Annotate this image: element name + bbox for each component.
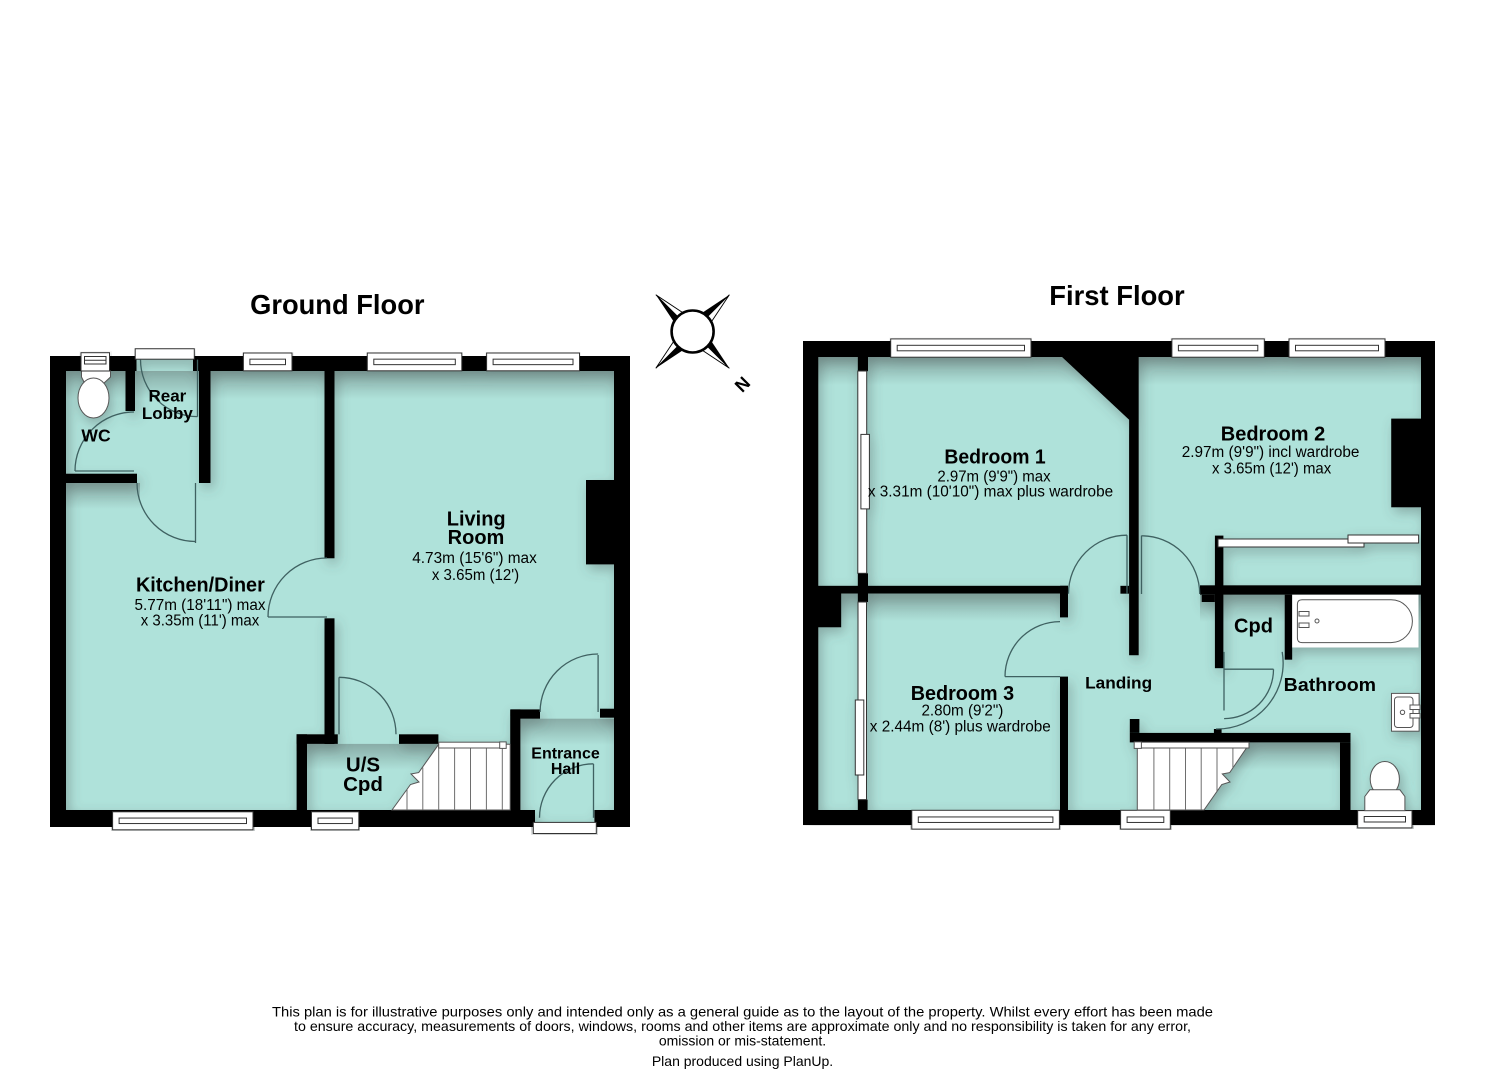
svg-text:x 2.44m (8') plus wardrobe: x 2.44m (8') plus wardrobe	[870, 719, 1051, 736]
svg-text:Rear: Rear	[148, 387, 186, 406]
svg-text:omission or mis-statement.: omission or mis-statement.	[659, 1033, 826, 1049]
svg-text:Plan produced using PlanUp.: Plan produced using PlanUp.	[652, 1053, 833, 1069]
svg-text:WC: WC	[81, 426, 111, 446]
svg-text:Lobby: Lobby	[142, 404, 194, 423]
svg-text:Bathroom: Bathroom	[1284, 674, 1376, 695]
svg-text:Cpd: Cpd	[343, 773, 383, 796]
svg-text:x 3.65m (12') max: x 3.65m (12') max	[1212, 461, 1331, 478]
svg-text:2.97m (9'9") incl wardrobe: 2.97m (9'9") incl wardrobe	[1182, 444, 1360, 461]
svg-text:Hall: Hall	[551, 761, 580, 778]
svg-text:Bedroom 2: Bedroom 2	[1221, 424, 1326, 446]
svg-text:Landing: Landing	[1085, 674, 1152, 692]
svg-text:x 3.65m (12'): x 3.65m (12')	[432, 567, 519, 584]
svg-text:Bedroom 1: Bedroom 1	[944, 446, 1045, 468]
svg-text:Kitchen/Diner: Kitchen/Diner	[136, 574, 265, 596]
svg-text:Room: Room	[448, 527, 505, 549]
svg-text:First Floor: First Floor	[1049, 280, 1184, 311]
svg-text:2.80m (9'2"): 2.80m (9'2")	[921, 703, 1003, 720]
svg-text:4.73m (15'6") max: 4.73m (15'6") max	[412, 550, 537, 567]
svg-text:x 3.35m (11') max: x 3.35m (11') max	[141, 613, 260, 630]
svg-text:5.77m (18'11") max: 5.77m (18'11") max	[135, 597, 266, 614]
svg-text:Cpd: Cpd	[1234, 615, 1273, 637]
svg-text:x 3.31m (10'10") max plus ward: x 3.31m (10'10") max plus wardrobe	[868, 484, 1113, 501]
svg-text:Ground Floor: Ground Floor	[250, 289, 424, 320]
